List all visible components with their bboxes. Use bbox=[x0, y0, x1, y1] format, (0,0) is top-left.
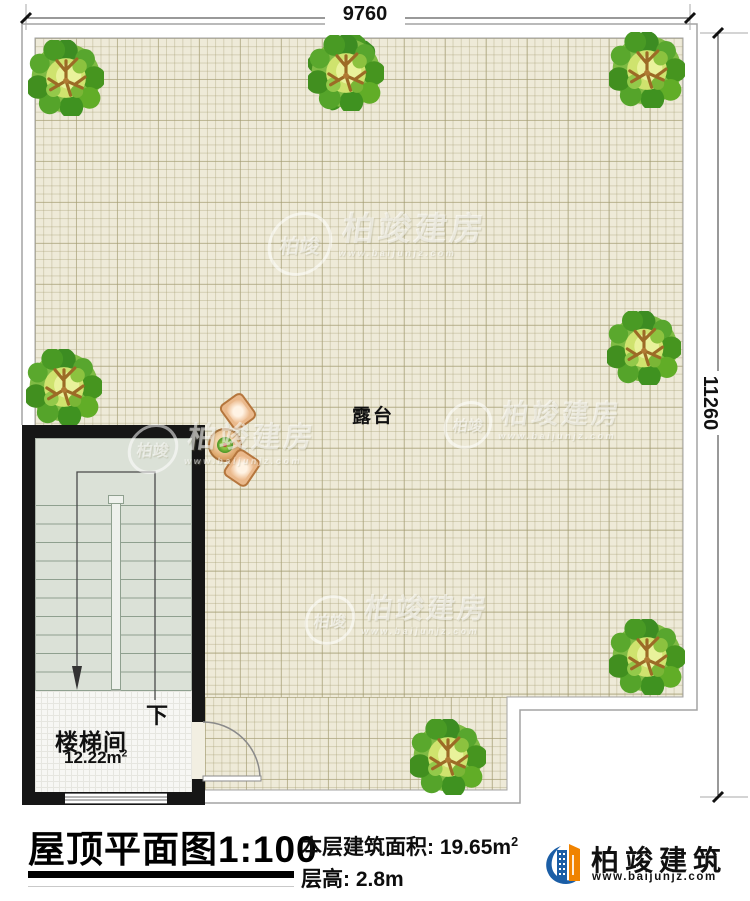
tree-icon bbox=[609, 619, 685, 695]
door-opening bbox=[192, 722, 205, 779]
floor-height-label: 层高: bbox=[301, 868, 350, 891]
watermark-url: www.baijunjz.com bbox=[361, 626, 486, 636]
watermark-text: 柏竣建房 bbox=[363, 595, 491, 623]
stair-divider bbox=[111, 500, 121, 690]
tree-icon bbox=[28, 40, 104, 116]
roof-plan-canvas: 柏竣 柏竣建房 www.baijunjz.com 柏竣 柏竣建房 www.bai… bbox=[0, 0, 750, 901]
company-logo-website: www.baijunjz.com bbox=[592, 871, 717, 883]
watermark-url: www.baijunjz.com bbox=[338, 248, 483, 258]
tree-icon bbox=[26, 349, 102, 425]
stair-flight-left bbox=[36, 505, 111, 691]
tree-icon bbox=[308, 35, 384, 111]
watermark-url: www.baijunjz.com bbox=[184, 456, 313, 466]
floor-area-label: 本层建筑面积: bbox=[301, 836, 434, 859]
watermark-badge: 柏竣 bbox=[124, 424, 181, 474]
floor-height-info: 层高: 2.8m bbox=[301, 863, 404, 893]
floor-area-info: 本层建筑面积: 19.65m2 bbox=[301, 831, 518, 861]
watermark: 柏竣 柏竣建房 www.baijunjz.com bbox=[124, 424, 317, 474]
floor-height-value: 2.8m bbox=[356, 868, 404, 891]
watermark-badge: 柏竣 bbox=[301, 595, 358, 645]
company-logo-icon bbox=[540, 837, 588, 889]
watermark-text: 柏竣建房 bbox=[185, 424, 317, 453]
dimension-top: 9760 bbox=[325, 3, 405, 25]
title-rule-thin bbox=[28, 886, 294, 887]
title-rule-thick bbox=[28, 871, 294, 878]
watermark: 柏竣 柏竣建房 www.baijunjz.com bbox=[441, 401, 624, 449]
floor-area-sup: 2 bbox=[511, 835, 518, 849]
tree-icon bbox=[410, 719, 486, 795]
dimension-right: 11260 bbox=[699, 371, 721, 435]
watermark-badge: 柏竣 bbox=[441, 401, 496, 449]
watermark-text: 柏竣建房 bbox=[340, 212, 489, 245]
floor-area-value: 19.65m bbox=[440, 836, 511, 859]
down-label: 下 bbox=[146, 698, 168, 730]
watermark-badge: 柏竣 bbox=[264, 212, 337, 276]
stair-divider-cap bbox=[108, 495, 124, 504]
watermark-text: 柏竣建房 bbox=[500, 401, 624, 428]
tree-icon bbox=[607, 311, 681, 385]
stair-room-area-value: 12.22m bbox=[64, 748, 122, 767]
watermark-url: www.baijunjz.com bbox=[498, 431, 619, 441]
tree-icon bbox=[609, 32, 685, 108]
watermark: 柏竣 柏竣建房 www.baijunjz.com bbox=[264, 212, 489, 276]
terrace-label: 露台 bbox=[352, 401, 394, 428]
watermark: 柏竣 柏竣建房 www.baijunjz.com bbox=[301, 595, 490, 645]
stair-room-area: 12.22m2 bbox=[64, 748, 127, 768]
window-symbol bbox=[65, 793, 167, 804]
stair-room-area-sup: 2 bbox=[122, 748, 128, 759]
drawing-title: 屋顶平面图1:100 bbox=[28, 819, 318, 873]
stair-flight-right bbox=[121, 505, 191, 691]
